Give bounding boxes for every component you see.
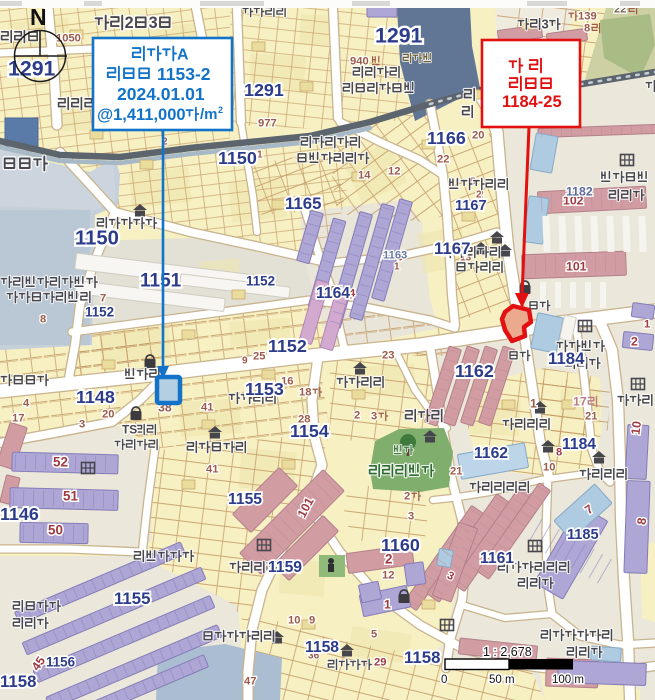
svg-text:3: 3: [79, 419, 85, 431]
svg-text:1159: 1159: [268, 559, 302, 576]
svg-text:1158: 1158: [305, 639, 339, 656]
svg-text:1165: 1165: [285, 194, 321, 213]
svg-text:29: 29: [374, 657, 386, 669]
svg-text:1152: 1152: [85, 304, 114, 319]
svg-text:3: 3: [149, 14, 158, 32]
svg-text:10: 10: [543, 462, 555, 474]
svg-text:20: 20: [472, 130, 484, 142]
svg-text:1184-25: 1184-25: [502, 93, 562, 111]
svg-text:50 m: 50 m: [489, 674, 515, 686]
svg-text:4: 4: [23, 398, 30, 410]
svg-text:1156: 1156: [46, 654, 75, 669]
svg-text:47: 47: [244, 676, 256, 688]
svg-text:23: 23: [382, 350, 394, 362]
svg-text:1153-2: 1153-2: [157, 64, 211, 84]
svg-text:4: 4: [349, 288, 356, 300]
svg-text:51: 51: [63, 488, 78, 503]
svg-text:10: 10: [629, 420, 645, 435]
svg-text:1150: 1150: [75, 228, 119, 250]
svg-text:1163: 1163: [383, 250, 407, 262]
svg-text:1148: 1148: [76, 387, 115, 407]
svg-text:1158: 1158: [0, 672, 36, 691]
svg-text:17: 17: [573, 395, 587, 409]
svg-text:1182: 1182: [566, 185, 593, 199]
svg-text:52: 52: [53, 454, 68, 469]
svg-text:41: 41: [201, 402, 213, 414]
svg-text:1: 1: [257, 150, 263, 161]
svg-text:9: 9: [242, 356, 248, 367]
svg-text:2024.01.01: 2024.01.01: [117, 84, 205, 104]
svg-text:0: 0: [441, 674, 447, 686]
svg-text:5: 5: [371, 629, 377, 641]
svg-text:1291: 1291: [375, 23, 423, 47]
svg-text:7: 7: [100, 293, 106, 305]
svg-text:8: 8: [40, 314, 46, 326]
svg-text:25: 25: [253, 351, 265, 363]
svg-text:1155: 1155: [228, 491, 262, 508]
svg-text:1167: 1167: [434, 239, 470, 258]
svg-text:8: 8: [584, 23, 590, 35]
svg-text:/m: /m: [200, 106, 218, 123]
svg-text:1162: 1162: [474, 445, 508, 462]
svg-text:1: 1: [530, 397, 537, 411]
svg-text:10: 10: [288, 615, 300, 627]
svg-text:1152: 1152: [268, 336, 307, 356]
svg-text:2: 2: [354, 410, 360, 422]
svg-text:12: 12: [382, 570, 394, 582]
svg-text:977: 977: [258, 118, 277, 130]
svg-text:1: 1: [644, 319, 650, 331]
svg-text:12: 12: [388, 166, 400, 178]
svg-text:1158: 1158: [404, 648, 440, 667]
svg-text:17: 17: [12, 413, 24, 425]
svg-text:41: 41: [206, 464, 218, 476]
svg-text:2: 2: [631, 335, 638, 349]
svg-text:2: 2: [125, 14, 134, 32]
svg-text:1291: 1291: [244, 80, 284, 100]
svg-text:1161: 1161: [480, 550, 514, 567]
svg-text:3: 3: [408, 511, 414, 523]
svg-text:21: 21: [585, 411, 597, 423]
svg-text:1155: 1155: [114, 589, 150, 608]
svg-text:20: 20: [102, 409, 114, 421]
svg-text:N: N: [30, 4, 47, 30]
svg-text:1 : 2,678: 1 : 2,678: [483, 645, 532, 659]
svg-text:1184: 1184: [548, 349, 585, 368]
svg-text:2: 2: [404, 491, 410, 503]
svg-text:1152: 1152: [246, 273, 275, 288]
svg-text:1: 1: [384, 598, 391, 612]
svg-text:100 m: 100 m: [552, 674, 584, 686]
svg-text:9: 9: [309, 615, 315, 627]
svg-text:940: 940: [350, 56, 369, 68]
svg-text:101: 101: [566, 260, 587, 274]
svg-text:1151: 1151: [140, 271, 182, 292]
svg-text:2: 2: [218, 105, 223, 115]
svg-text:1167: 1167: [455, 198, 487, 214]
svg-text:21: 21: [450, 466, 462, 478]
svg-text:50: 50: [48, 522, 63, 537]
svg-text:1166: 1166: [427, 128, 466, 148]
svg-text:14: 14: [358, 170, 371, 182]
svg-text:139: 139: [578, 11, 597, 23]
svg-text:1164: 1164: [316, 285, 350, 302]
svg-text:3: 3: [542, 17, 549, 32]
svg-text:1150: 1150: [218, 148, 257, 168]
svg-text:@1,411,000: @1,411,000: [97, 106, 186, 124]
svg-text:1184: 1184: [562, 436, 596, 453]
svg-text:1050: 1050: [56, 33, 81, 45]
svg-text:1146: 1146: [0, 504, 39, 524]
svg-text:TS: TS: [122, 423, 137, 437]
svg-text:1162: 1162: [455, 361, 494, 381]
svg-text:22: 22: [437, 154, 449, 166]
svg-text:3: 3: [371, 411, 377, 423]
svg-text:18: 18: [299, 387, 311, 399]
svg-text:1154: 1154: [290, 421, 329, 441]
svg-text:A: A: [177, 47, 189, 64]
svg-text:1160: 1160: [381, 535, 420, 555]
svg-text:1: 1: [394, 262, 400, 273]
svg-text:1185: 1185: [567, 527, 599, 543]
svg-text:1153: 1153: [245, 379, 284, 399]
